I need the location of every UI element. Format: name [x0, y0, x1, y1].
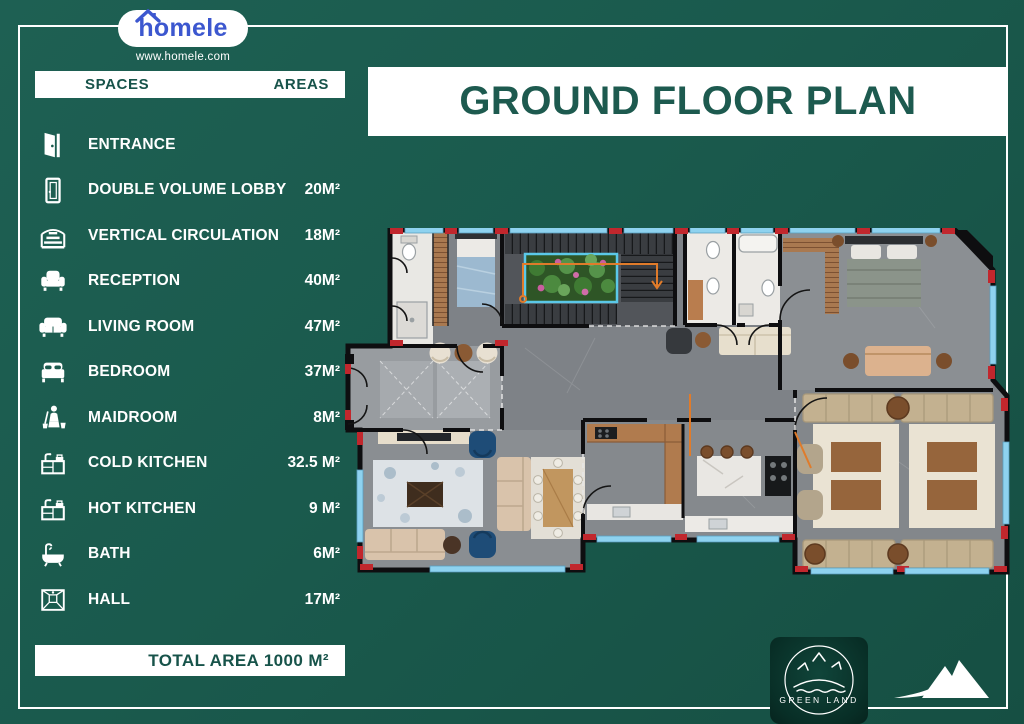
legend-rows: ENTRANCE DOUBLE VOLUME LOBBY 20M² VERTIC… [38, 122, 340, 623]
space-name: HOT KITCHEN [88, 500, 196, 518]
space-area: 40M² [305, 272, 340, 290]
space-area: 9 M² [309, 500, 340, 518]
space-name: DOUBLE VOLUME LOBBY [88, 181, 286, 199]
space-area: 18M² [305, 227, 340, 245]
page: homele www.homele.com SPACES AREAS ENTRA… [0, 0, 1024, 724]
space-name: HALL [88, 591, 130, 609]
website-url: www.homele.com [110, 51, 256, 63]
legend-row: BATH 6M² [38, 532, 340, 578]
legend-row: VERTICAL CIRCULATION 18M² [38, 213, 340, 259]
maid-icon [38, 403, 68, 433]
hill-arc [794, 680, 844, 687]
page-title: GROUND FLOOR PLAN [459, 79, 916, 124]
bird-icon [832, 662, 841, 669]
green-land-text: GREEN LAND [779, 695, 858, 705]
floor-plan-drawing [345, 228, 1015, 588]
door-open-icon [38, 130, 68, 160]
space-name: LIVING ROOM [88, 318, 194, 336]
floor-plan [345, 228, 1015, 588]
legend-row: BEDROOM 37M² [38, 350, 340, 396]
legend-header: SPACES AREAS [35, 71, 345, 98]
legend-row: ENTRANCE [38, 122, 340, 168]
space-area: 32.5 M² [287, 454, 340, 472]
house-roof-icon [135, 9, 161, 23]
space-name: VERTICAL CIRCULATION [88, 227, 279, 245]
legend-row: DOUBLE VOLUME LOBBY 20M² [38, 168, 340, 214]
col-spaces: SPACES [85, 76, 149, 93]
space-area: 47M² [305, 318, 340, 336]
space-area: 37M² [305, 363, 340, 381]
bird-icon [798, 663, 808, 670]
space-name: COLD KITCHEN [88, 454, 208, 472]
legend-row: LIVING ROOM 47M² [38, 304, 340, 350]
homele-logo: homele [118, 10, 248, 47]
kitchen-icon [38, 448, 68, 478]
title-box: GROUND FLOOR PLAN [368, 67, 1008, 136]
bed-icon [38, 357, 68, 387]
space-area: 8M² [313, 409, 340, 427]
space-name: BATH [88, 545, 131, 563]
green-land-badge: GREEN LAND [770, 637, 868, 724]
legend-row: MAIDROOM 8M² [38, 395, 340, 441]
legend-row: HALL 17M² [38, 577, 340, 623]
bathtub-icon [38, 539, 68, 569]
space-area: 17M² [305, 591, 340, 609]
armchair-icon [38, 266, 68, 296]
space-area: 6M² [313, 545, 340, 563]
kitchen-icon [38, 494, 68, 524]
total-area-bar: TOTAL AREA 1000 M² [35, 645, 345, 676]
legend-row: HOT KITCHEN 9 M² [38, 486, 340, 532]
legend-row: COLD KITCHEN 32.5 M² [38, 441, 340, 487]
space-name: BEDROOM [88, 363, 170, 381]
stairs-icon [38, 221, 68, 251]
brand-text: homele [138, 16, 227, 41]
total-area-text: TOTAL AREA 1000 M² [148, 651, 329, 671]
legend-row: RECEPTION 40M² [38, 259, 340, 305]
space-name: RECEPTION [88, 272, 180, 290]
bird-icon [813, 653, 825, 661]
space-name: MAIDROOM [88, 409, 177, 427]
mountain-logo [892, 650, 994, 704]
hall-icon [38, 585, 68, 615]
green-land-logo: GREEN LAND [770, 637, 868, 724]
sofa-icon [38, 312, 68, 342]
door-icon [38, 175, 68, 205]
space-area: 20M² [305, 181, 340, 199]
space-name: ENTRANCE [88, 136, 176, 154]
col-areas: AREAS [273, 76, 329, 93]
